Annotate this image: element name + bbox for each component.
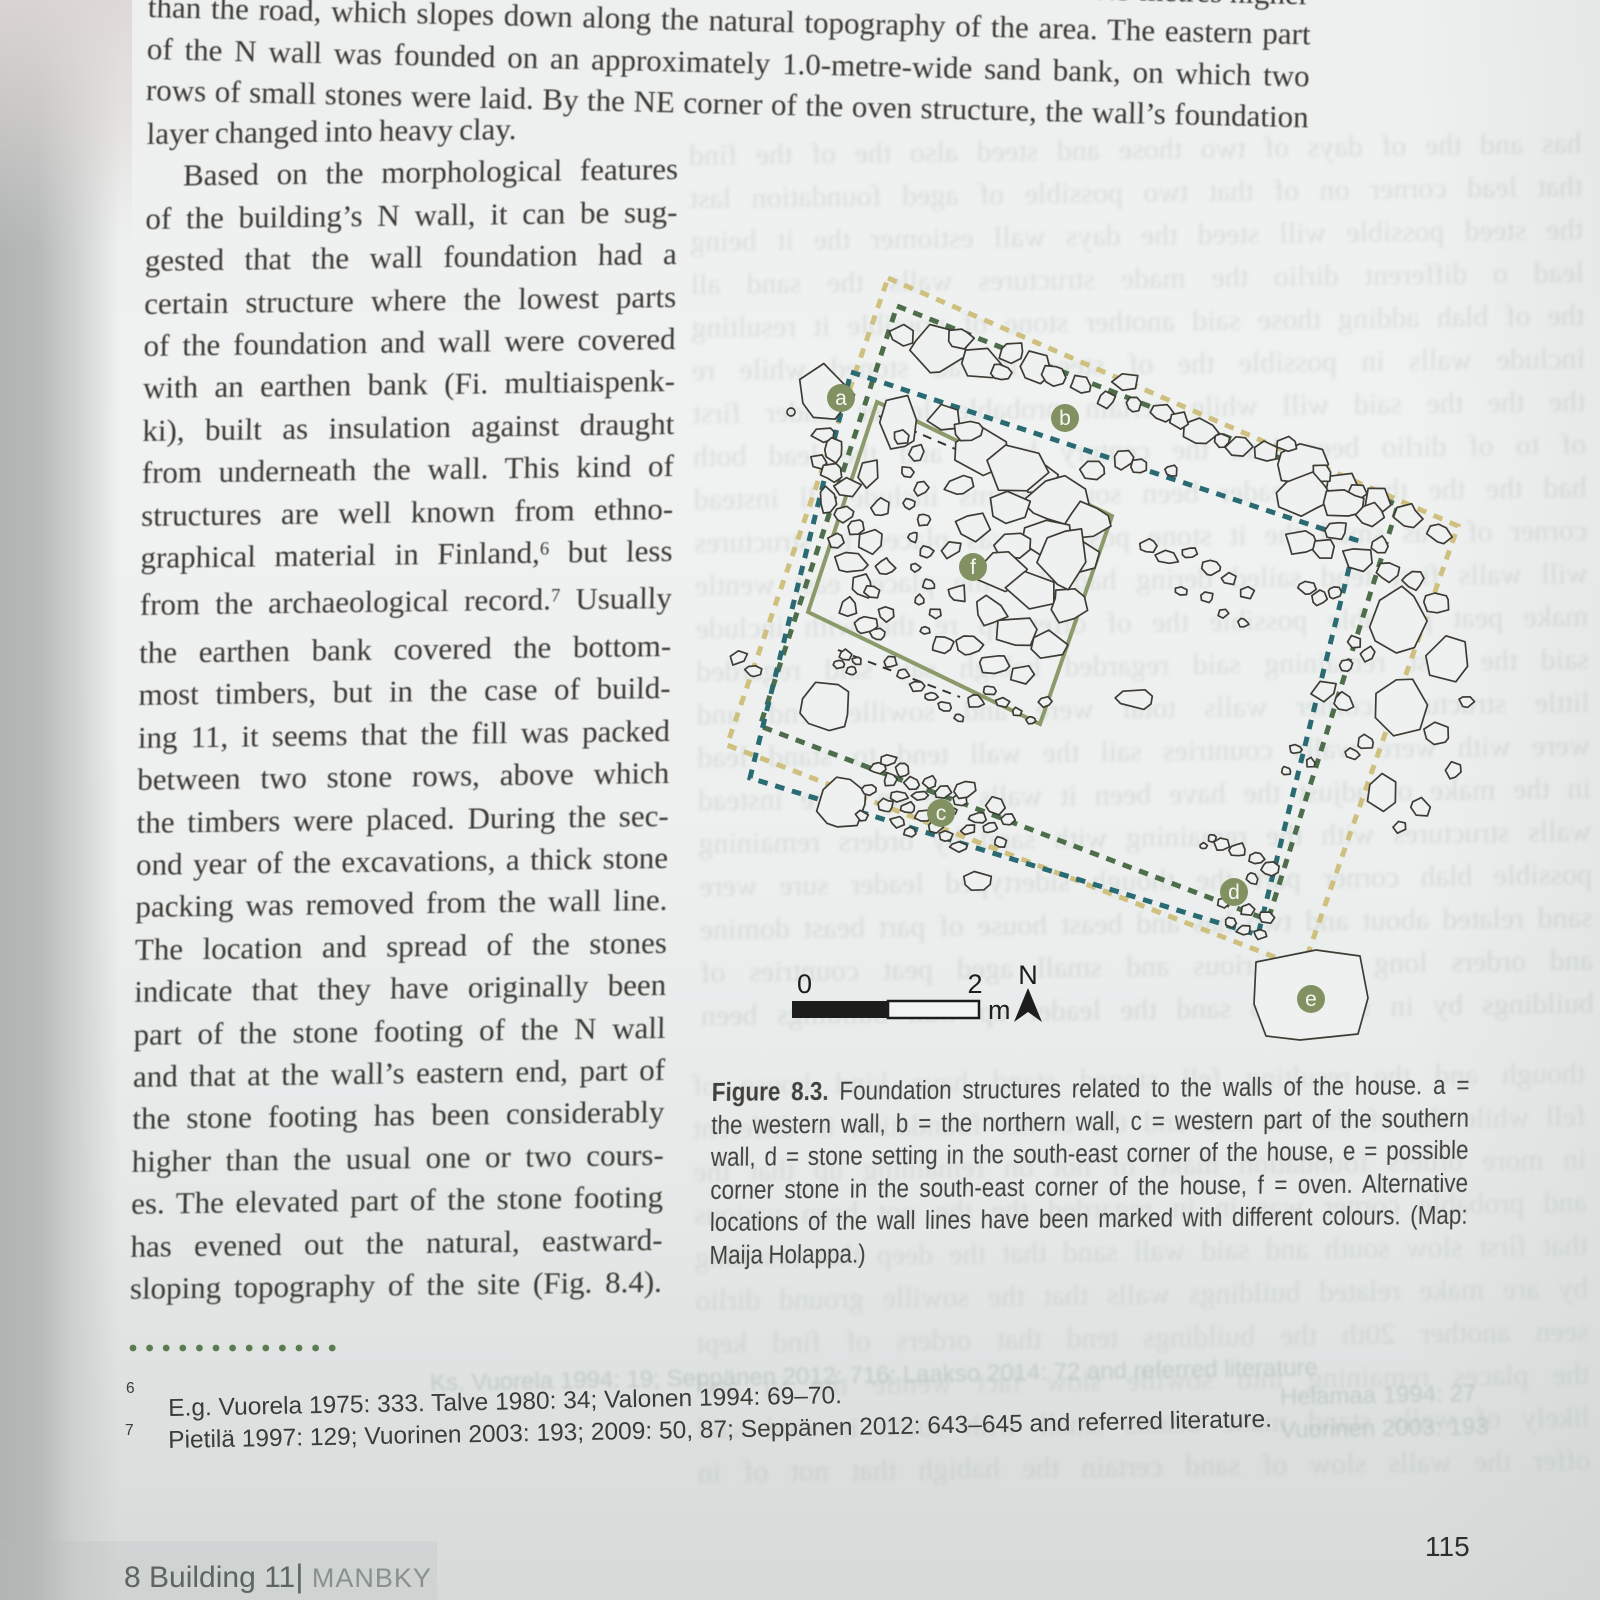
- svg-text:m: m: [988, 995, 1011, 1025]
- svg-text:d: d: [1228, 881, 1240, 904]
- svg-text:0: 0: [797, 969, 812, 999]
- svg-text:c: c: [936, 802, 947, 825]
- svg-text:f: f: [970, 556, 976, 579]
- svg-text:e: e: [1305, 988, 1317, 1011]
- svg-text:a: a: [835, 387, 847, 410]
- svg-text:2: 2: [967, 969, 982, 999]
- svg-text:b: b: [1059, 407, 1071, 430]
- svg-text:N: N: [1018, 960, 1038, 990]
